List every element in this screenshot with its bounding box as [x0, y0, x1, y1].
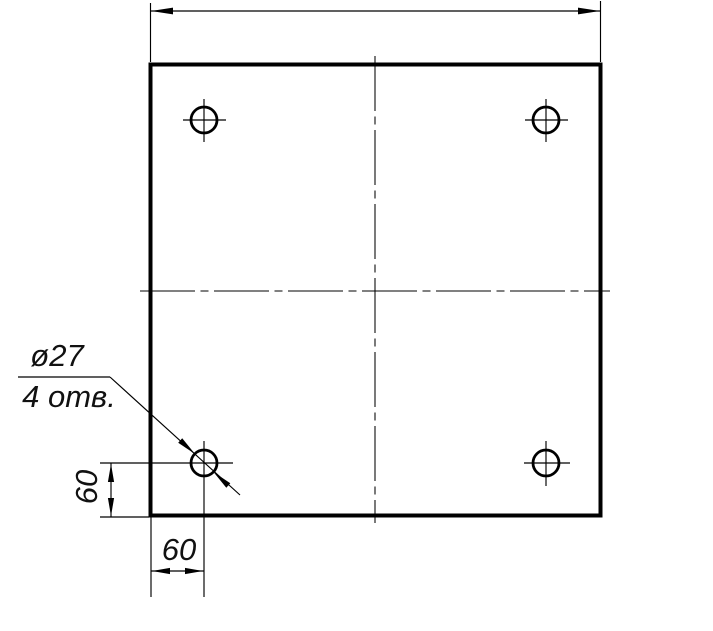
top-dimension	[151, 1, 601, 62]
arrowhead-right	[185, 568, 203, 574]
hole-bottom-right	[524, 441, 570, 486]
arrowhead-right	[578, 8, 600, 15]
arrowhead-up	[108, 464, 114, 482]
hole-top-right	[525, 99, 568, 142]
arrowhead-left	[152, 568, 170, 574]
arrowhead-left	[151, 8, 173, 15]
leader-arrowhead-upper	[178, 438, 195, 454]
bottom-offset-label: 60	[162, 532, 196, 567]
callout-diameter-label: ø27	[30, 338, 85, 373]
technical-drawing-canvas: ø27 4 отв. 60 60	[0, 0, 713, 631]
plate-drawing: ø27 4 отв. 60 60	[0, 0, 713, 631]
diameter-callout: ø27 4 отв.	[18, 338, 240, 495]
bottom-dimension-60: 60	[151, 517, 204, 597]
hole-top-left	[183, 99, 226, 142]
callout-count-label: 4 отв.	[22, 379, 116, 414]
leader-arrowhead-lower	[214, 472, 231, 488]
hole-bottom-left	[100, 441, 233, 597]
arrowhead-down	[108, 498, 114, 516]
left-offset-label: 60	[69, 470, 104, 504]
left-dimension-60: 60	[69, 463, 149, 517]
